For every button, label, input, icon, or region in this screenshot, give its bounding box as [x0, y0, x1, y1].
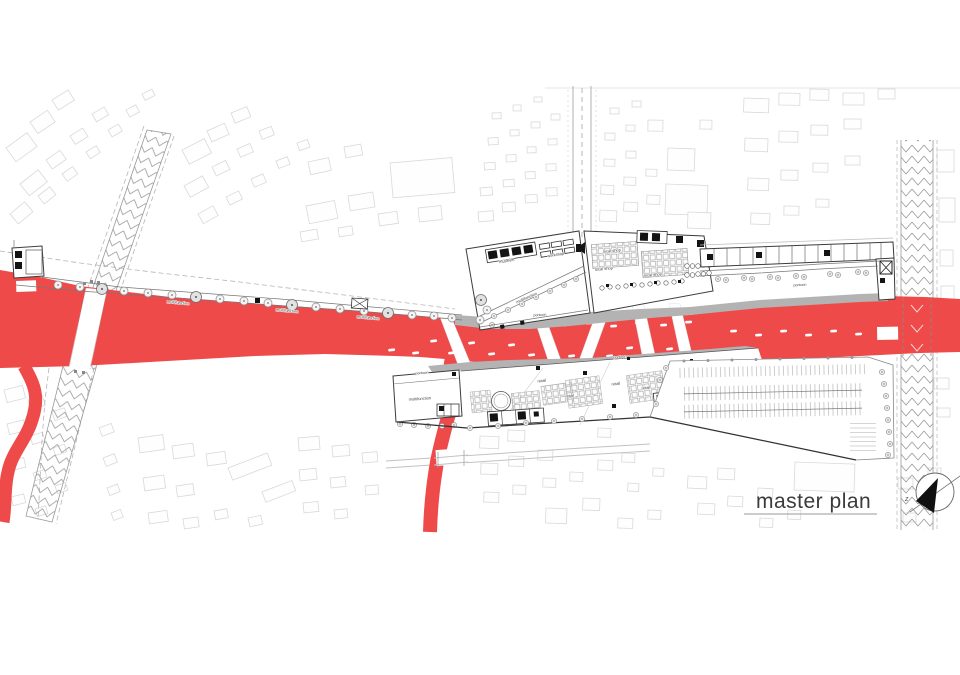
- site-plan-svg: museum workshop multifunction local shop…: [0, 0, 960, 675]
- compass-letter: z: [904, 496, 909, 503]
- market-pavilion: [637, 231, 667, 244]
- stair-core: [876, 258, 895, 300]
- label-pontoon: pontoon: [793, 283, 806, 288]
- strip-trees: [715, 269, 868, 282]
- plan-title: master plan: [756, 490, 871, 513]
- title-block: master plan: [744, 490, 877, 514]
- label-retail: retail: [611, 381, 620, 387]
- west-entry-building: [12, 240, 44, 278]
- rooms: [437, 404, 459, 416]
- market-plaza: local shop local shop local shop: [584, 231, 713, 313]
- master-plan-drawing: museum workshop multifunction local shop…: [0, 0, 960, 675]
- label-retail: retail: [537, 378, 546, 384]
- floating-platform-east: [877, 327, 898, 340]
- museum-plaza: museum workshop multifunction: [466, 231, 590, 330]
- shop-strip: pontoon: [700, 238, 895, 300]
- label-retail: retail: [641, 385, 650, 391]
- label-retail: retail: [565, 393, 574, 399]
- stream-bridge: [434, 448, 468, 468]
- circular-plaza: [492, 392, 511, 411]
- parking-lot: [650, 356, 894, 460]
- levee-road-north: [90, 130, 171, 302]
- label-pontoon: pontoon: [533, 313, 546, 318]
